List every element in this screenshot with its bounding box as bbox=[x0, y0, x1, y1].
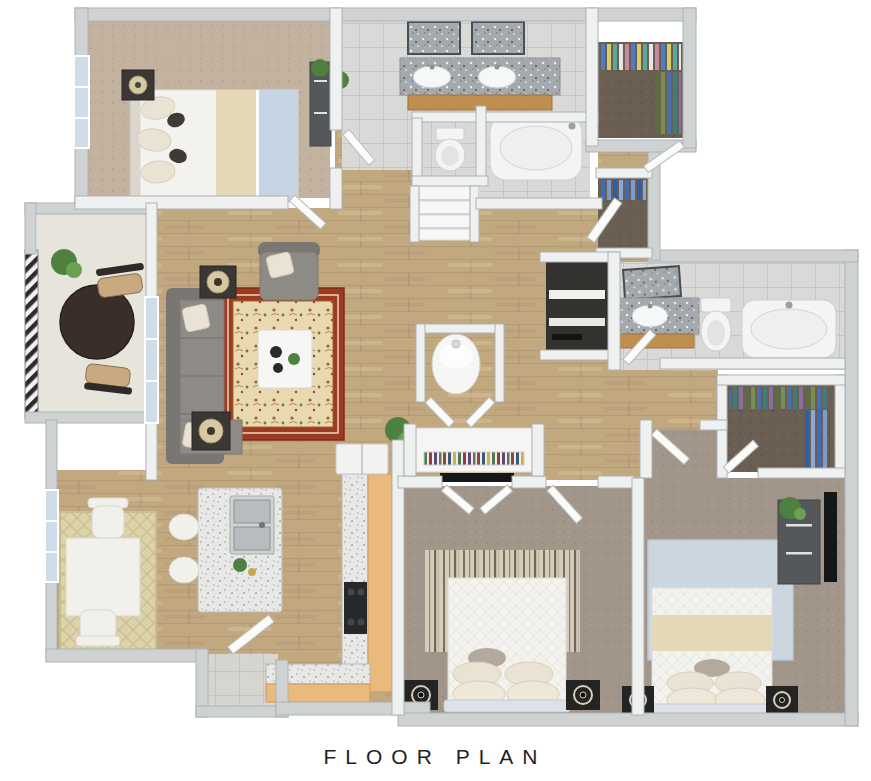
end-table-top bbox=[200, 266, 236, 298]
bedroom1-dresser bbox=[310, 59, 331, 146]
armchair bbox=[258, 242, 320, 300]
bedroom1-nightstand bbox=[122, 70, 154, 100]
bedroom2-bed bbox=[444, 578, 570, 712]
laundry-alcove bbox=[546, 262, 608, 352]
toilet bbox=[701, 298, 731, 351]
sink-basin bbox=[234, 500, 270, 523]
linen-closet bbox=[419, 186, 470, 240]
bedroom1-window bbox=[74, 56, 89, 148]
faucet-icon bbox=[259, 522, 265, 528]
page-title: FLOOR PLAN bbox=[323, 745, 546, 768]
bathtub bbox=[742, 300, 836, 358]
dining-window bbox=[45, 490, 58, 582]
bedroom3-dresser bbox=[778, 497, 820, 584]
sink-basin bbox=[234, 527, 270, 550]
tv bbox=[440, 473, 514, 482]
dining-chair-top bbox=[88, 498, 128, 538]
water-closet-toilet bbox=[435, 128, 465, 171]
balcony-railing bbox=[25, 250, 38, 418]
throw-pillow bbox=[182, 304, 210, 332]
refrigerator bbox=[336, 444, 388, 474]
tub-faucet-icon bbox=[786, 302, 793, 309]
plant-icon bbox=[288, 353, 300, 365]
coffee-table bbox=[258, 330, 312, 388]
dining-table bbox=[66, 538, 140, 616]
end-table-bottom bbox=[192, 412, 230, 450]
balcony-sliding-door bbox=[145, 297, 158, 423]
water-heater bbox=[432, 334, 480, 394]
mirror-left bbox=[408, 22, 460, 54]
mirror-right bbox=[472, 22, 524, 54]
barstool bbox=[169, 514, 199, 540]
tub-faucet-icon bbox=[569, 123, 576, 130]
plant-icon bbox=[311, 59, 329, 77]
kitchen-island bbox=[198, 488, 282, 612]
bedroom3-bed bbox=[648, 588, 776, 714]
bookshelf bbox=[424, 452, 524, 465]
plant-icon bbox=[233, 558, 247, 572]
closet3-clothes bbox=[600, 180, 646, 200]
dining-chair-bottom bbox=[76, 610, 120, 646]
mirror bbox=[623, 266, 681, 300]
barstool bbox=[169, 557, 199, 583]
bedroom1-bed bbox=[130, 90, 298, 202]
floor-plan-rendering: FLOOR PLAN bbox=[0, 0, 871, 781]
floor-plan-page: FLOOR PLAN bbox=[0, 0, 871, 781]
garden-tub bbox=[490, 116, 582, 180]
bedroom3-tv bbox=[824, 492, 837, 582]
